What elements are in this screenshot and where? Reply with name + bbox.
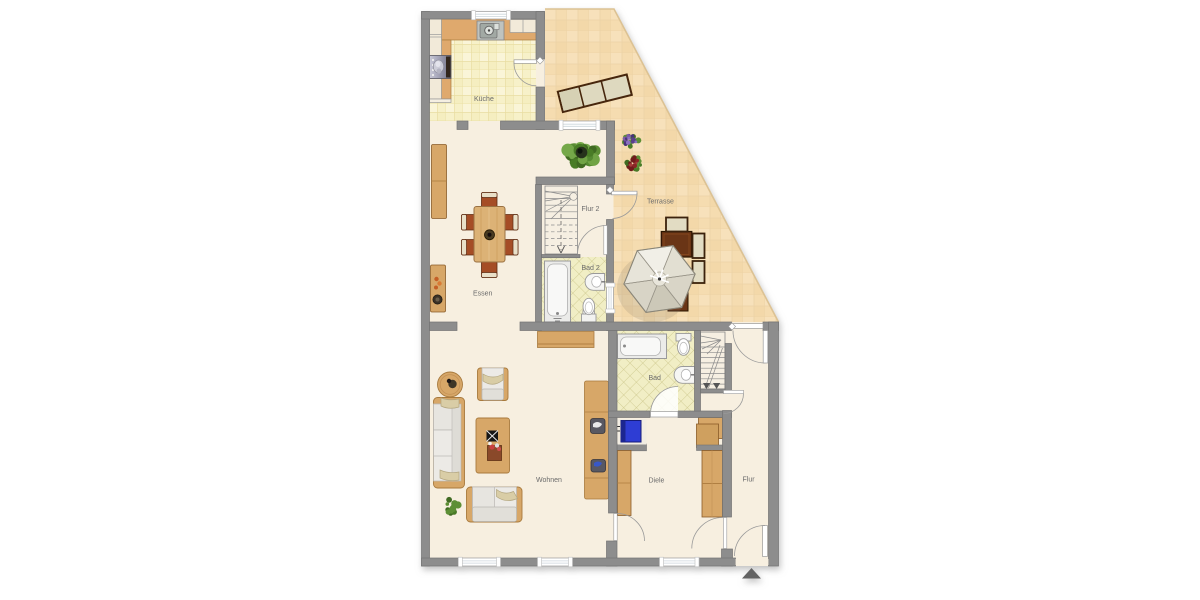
svg-text:Terrasse: Terrasse bbox=[647, 199, 674, 206]
svg-text:Bad 2: Bad 2 bbox=[582, 265, 600, 272]
svg-text:Flur 2: Flur 2 bbox=[582, 206, 600, 213]
svg-text:Wohnen: Wohnen bbox=[536, 477, 562, 484]
svg-text:Flur: Flur bbox=[743, 477, 756, 484]
svg-text:Küche: Küche bbox=[474, 96, 494, 103]
svg-text:Essen: Essen bbox=[473, 291, 493, 298]
svg-text:Diele: Diele bbox=[649, 478, 665, 485]
svg-text:Bad: Bad bbox=[649, 375, 662, 382]
